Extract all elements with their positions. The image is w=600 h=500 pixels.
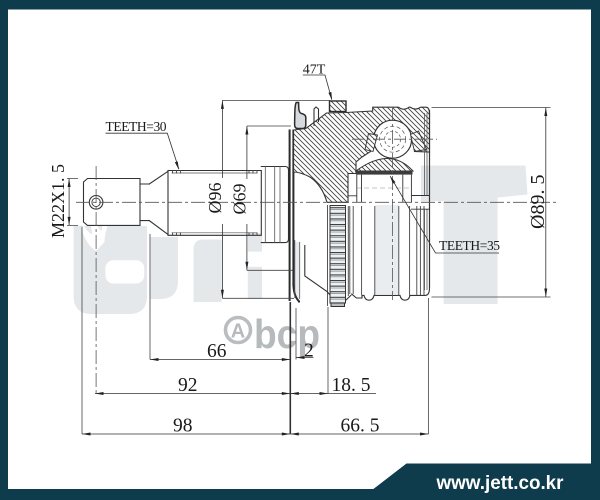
svg-text:TEETH=30: TEETH=30 xyxy=(106,119,167,134)
svg-text:TEETH=35: TEETH=35 xyxy=(439,238,500,253)
svg-text:98: 98 xyxy=(173,416,193,437)
svg-text:66: 66 xyxy=(207,341,227,362)
svg-text:A: A xyxy=(231,321,245,343)
svg-text:M22X1. 5: M22X1. 5 xyxy=(48,164,68,238)
svg-text:Ø89. 5: Ø89. 5 xyxy=(527,175,549,229)
svg-text:18. 5: 18. 5 xyxy=(332,375,371,396)
svg-text:www.jett.co.kr: www.jett.co.kr xyxy=(436,473,565,494)
svg-text:2: 2 xyxy=(304,341,314,362)
svg-text:92: 92 xyxy=(178,375,198,396)
svg-text:66. 5: 66. 5 xyxy=(341,416,380,437)
svg-text:Ø69: Ø69 xyxy=(230,184,250,215)
svg-text:Ø96: Ø96 xyxy=(205,183,225,214)
